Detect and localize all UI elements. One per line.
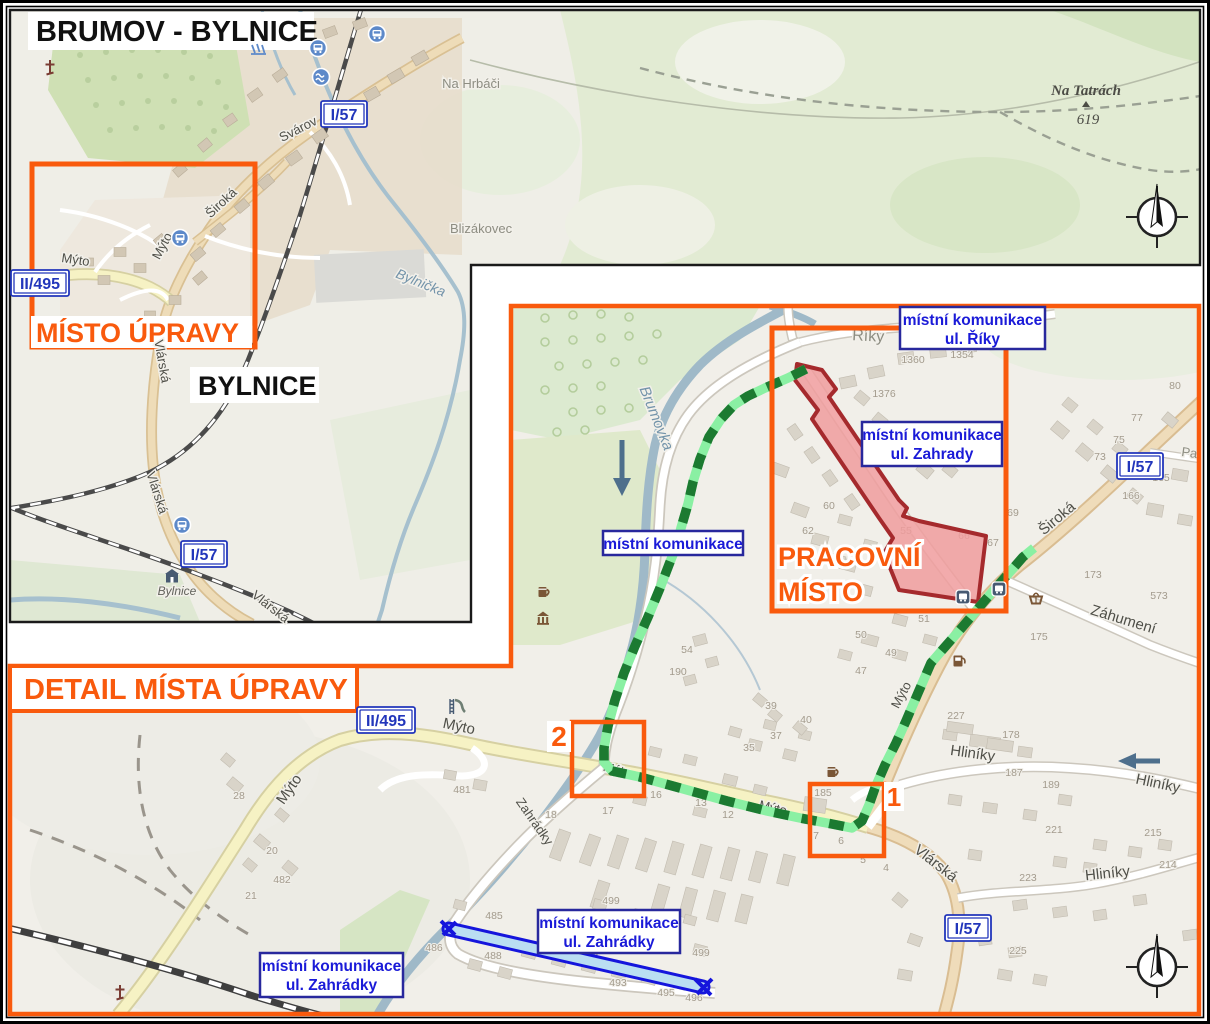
road-badge: I/57 (181, 541, 227, 567)
svg-text:II/495: II/495 (20, 276, 60, 293)
house-number: 21 (245, 890, 257, 902)
house-number: 37 (770, 730, 782, 742)
house-number: 481 (453, 784, 471, 796)
house-number: 49 (885, 647, 897, 659)
map-title: BRUMOV - BYLNICE (36, 16, 318, 48)
house-number: 50 (855, 629, 867, 641)
callout-line: ul. Zahrady (891, 446, 974, 463)
house-number: 69 (1007, 507, 1019, 519)
mistni-komunikace-callout: místní komunikaceul. Zahrady (862, 422, 1002, 466)
callout-line: místní komunikace (262, 958, 402, 975)
callout-line: místní komunikace (862, 427, 1002, 444)
district-label: BYLNICE (198, 371, 317, 401)
road-badge: I/57 (321, 101, 367, 127)
house-number: 178 (1002, 729, 1020, 741)
house-number: 185 (814, 787, 832, 799)
house-number: 215 (1144, 827, 1162, 839)
house-number: 47 (855, 665, 867, 677)
train-station-icon (174, 517, 191, 534)
house-number: 12 (722, 809, 734, 821)
house-number: 7 (813, 830, 819, 842)
house-number: 67 (987, 537, 999, 549)
train-station-icon (310, 40, 327, 57)
detail-heading-box: DETAIL MÍSTA ÚPRAVY (10, 666, 357, 711)
house-number: 54 (681, 644, 693, 656)
peak-name: Na Tatrách (1050, 83, 1121, 99)
callout-line: místní komunikace (603, 536, 743, 553)
road-badge: II/495 (11, 270, 69, 296)
house-number: 499 (602, 895, 620, 907)
house-number: 40 (800, 714, 812, 726)
map-svg: 1376136013548077757369165166606255666751… (0, 0, 1210, 1024)
house-number: 75 (1113, 434, 1125, 446)
house-number: 187 (1005, 767, 1023, 779)
traffic-plan-map: 1376136013548077757369165166606255666751… (0, 0, 1210, 1024)
detail-heading: DETAIL MÍSTA ÚPRAVY (24, 672, 348, 706)
road-badge: I/57 (1117, 453, 1163, 479)
street-label: Na Hrbáči (442, 76, 500, 91)
house-number: 499 (692, 947, 710, 959)
house-number: 214 (1159, 859, 1177, 871)
house-number: 488 (484, 950, 502, 962)
callout-line: ul. Zahrádky (563, 934, 655, 951)
mistni-komunikace-callout: místní komunikace (603, 531, 743, 555)
house-number: 60 (823, 500, 835, 512)
mistni-komunikace-callout: místní komunikaceul. Říky (900, 307, 1045, 349)
house-number: 223 (1019, 872, 1037, 884)
callout-line: ul. Zahrádky (286, 977, 378, 994)
house-number: 77 (1131, 412, 1143, 424)
house-number: 189 (1042, 779, 1060, 791)
house-number: 28 (233, 790, 245, 802)
svg-text:I/57: I/57 (331, 107, 358, 124)
house-number: 80 (1169, 380, 1181, 392)
house-number: 1360 (901, 354, 925, 366)
house-number: 1354 (950, 349, 974, 361)
site-label: MÍSTO ÚPRAVY (36, 317, 239, 348)
house-number: 6 (838, 835, 844, 847)
work-zone-label-line2: MÍSTO (778, 576, 863, 607)
bus-stop-icon (992, 582, 1006, 596)
house-number: 486 (425, 942, 443, 954)
house-number: 73 (1094, 451, 1106, 463)
house-number: 20 (266, 845, 278, 857)
marker-1-number: 1 (887, 782, 901, 812)
mistni-komunikace-callout: místní komunikaceul. Zahrádky (538, 910, 680, 953)
house-number: 51 (918, 613, 930, 625)
house-number: 493 (609, 977, 627, 989)
callout-line: místní komunikace (903, 312, 1043, 329)
bus-stop-icon (956, 590, 970, 604)
house-number: 17 (602, 805, 614, 817)
mistni-komunikace-callout: místní komunikaceul. Zahrádky (260, 953, 403, 997)
swimming-icon (313, 69, 330, 86)
peak-elevation: 619 (1077, 112, 1100, 128)
svg-text:I/57: I/57 (191, 547, 218, 564)
house-number: 485 (485, 910, 503, 922)
house-number: 175 (1030, 631, 1048, 643)
house-number: 62 (802, 525, 814, 537)
road-badge: II/495 (357, 707, 415, 733)
house-number: 16 (650, 789, 662, 801)
house-number: 18 (545, 809, 557, 821)
house-number: 4 (883, 862, 889, 874)
house-number: 221 (1045, 824, 1063, 836)
marker-2-number: 2 (551, 721, 567, 752)
house-number: 166 (1122, 490, 1140, 502)
svg-text:I/57: I/57 (1127, 459, 1154, 476)
house-number: 227 (947, 710, 965, 722)
house-number: 190 (669, 666, 687, 678)
road-badge: I/57 (945, 915, 991, 941)
house-number: 225 (1009, 945, 1027, 957)
street-label: Bylnice (158, 584, 197, 598)
house-number: 573 (1150, 590, 1168, 602)
callout-line: místní komunikace (539, 915, 679, 932)
house-number: 482 (273, 874, 291, 886)
svg-text:I/57: I/57 (955, 921, 982, 938)
house-number: 39 (765, 700, 777, 712)
train-station-icon (172, 230, 189, 247)
street-label: Blizákovec (450, 221, 513, 236)
house-number: 1376 (872, 388, 896, 400)
callout-line: ul. Říky (945, 330, 1001, 348)
house-number: 173 (1084, 569, 1102, 581)
house-number: 495 (657, 987, 675, 999)
svg-text:II/495: II/495 (366, 713, 406, 730)
train-station-icon (369, 26, 386, 43)
work-zone-label-line1: PRACOVNÍ (778, 541, 922, 572)
house-number: 35 (743, 742, 755, 754)
